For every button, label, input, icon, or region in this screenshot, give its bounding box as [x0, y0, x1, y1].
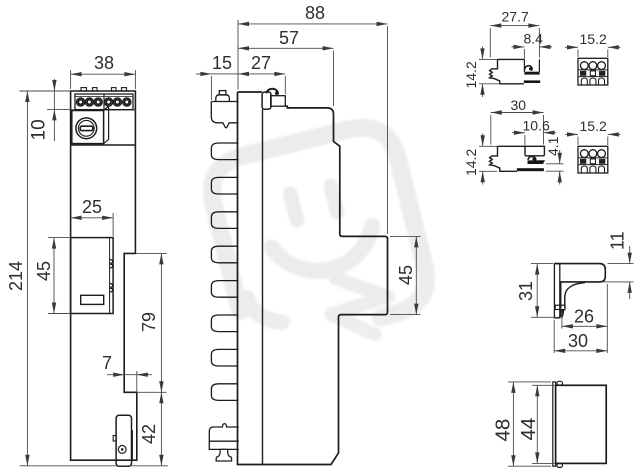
svg-text:8.4: 8.4	[524, 31, 544, 47]
svg-text:15: 15	[212, 53, 232, 73]
svg-text:7: 7	[102, 353, 112, 373]
svg-text:38: 38	[94, 53, 114, 73]
svg-text:11: 11	[608, 231, 628, 250]
svg-text:15.2: 15.2	[580, 118, 607, 134]
svg-text:27: 27	[251, 53, 271, 73]
svg-text:4.1: 4.1	[545, 136, 561, 156]
svg-text:14.2: 14.2	[463, 61, 479, 88]
svg-text:214: 214	[6, 261, 26, 291]
svg-text:79: 79	[139, 312, 159, 332]
svg-text:45: 45	[396, 265, 416, 285]
svg-text:42: 42	[139, 424, 159, 444]
svg-text:45: 45	[34, 261, 54, 281]
svg-text:10.6: 10.6	[523, 117, 550, 133]
svg-text:30: 30	[511, 97, 527, 113]
svg-text:25: 25	[82, 197, 102, 217]
svg-text:48: 48	[492, 419, 515, 442]
svg-text:88: 88	[305, 3, 325, 23]
svg-text:27.7: 27.7	[502, 9, 529, 25]
svg-text:14.2: 14.2	[463, 149, 479, 176]
svg-text:57: 57	[279, 28, 299, 48]
svg-text:31: 31	[516, 281, 536, 301]
svg-text:44: 44	[517, 418, 540, 441]
svg-text:26: 26	[574, 307, 594, 327]
svg-text:30: 30	[568, 331, 588, 351]
svg-text:10: 10	[29, 119, 50, 140]
svg-text:15.2: 15.2	[580, 31, 607, 47]
